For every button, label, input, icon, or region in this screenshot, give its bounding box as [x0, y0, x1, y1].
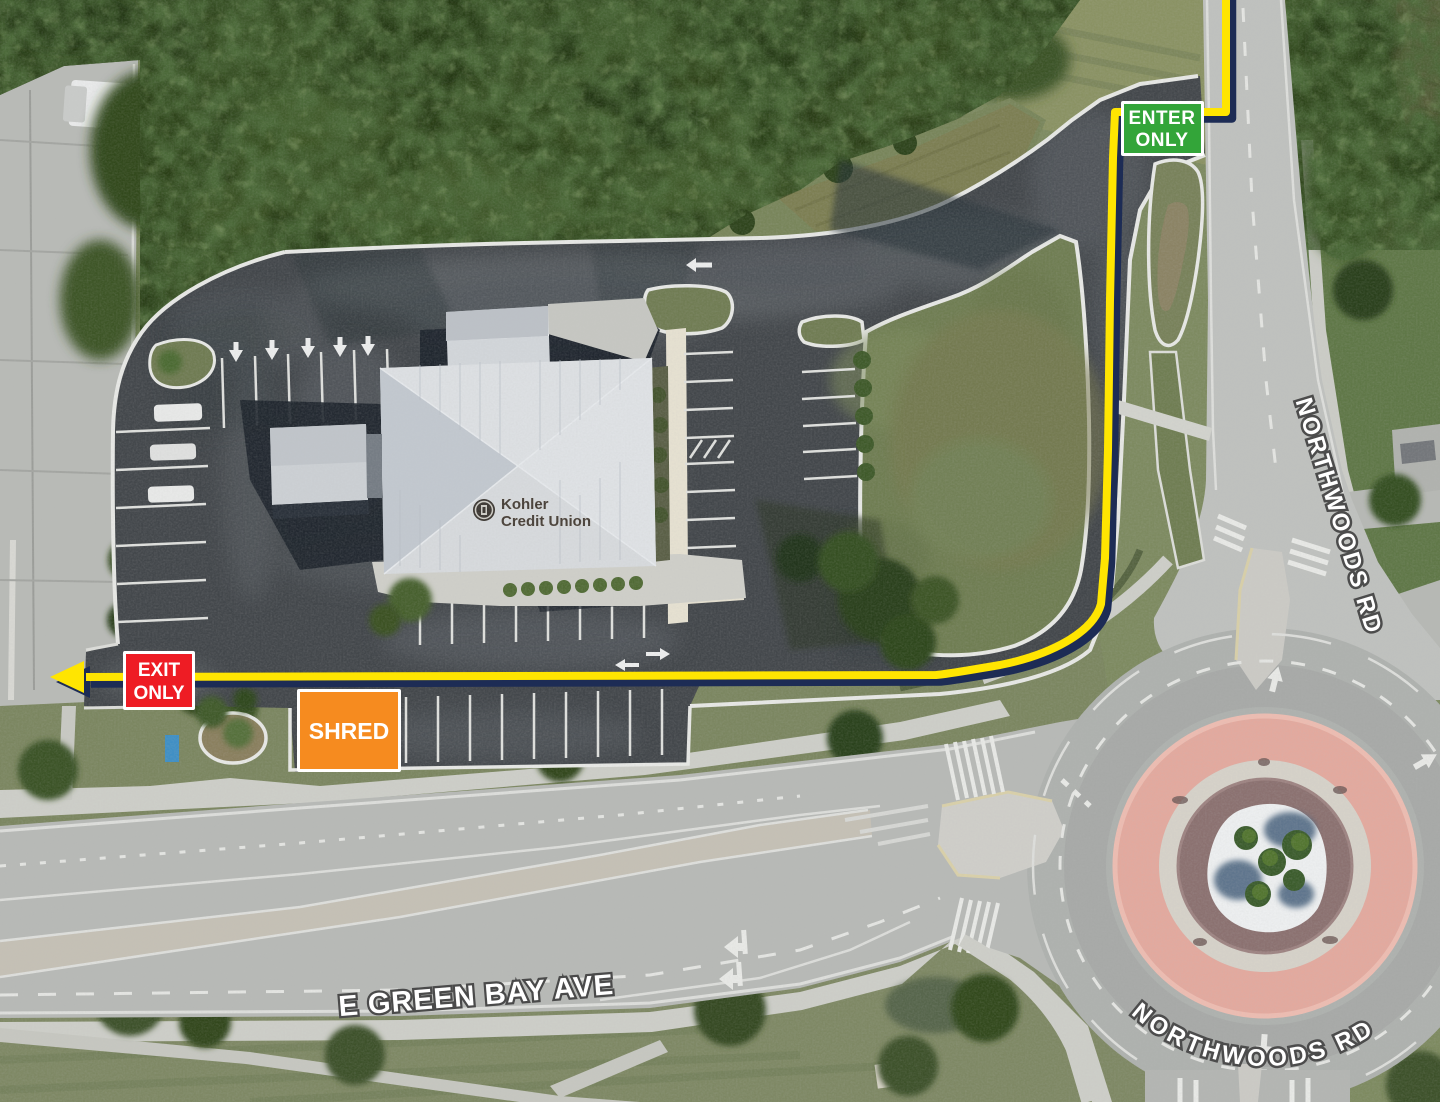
- svg-text:EXIT: EXIT: [138, 660, 181, 681]
- svg-text:SHRED: SHRED: [309, 718, 390, 744]
- svg-text:ONLY: ONLY: [1135, 130, 1188, 151]
- svg-text:ENTER: ENTER: [1129, 108, 1196, 129]
- svg-text:ONLY: ONLY: [133, 683, 184, 704]
